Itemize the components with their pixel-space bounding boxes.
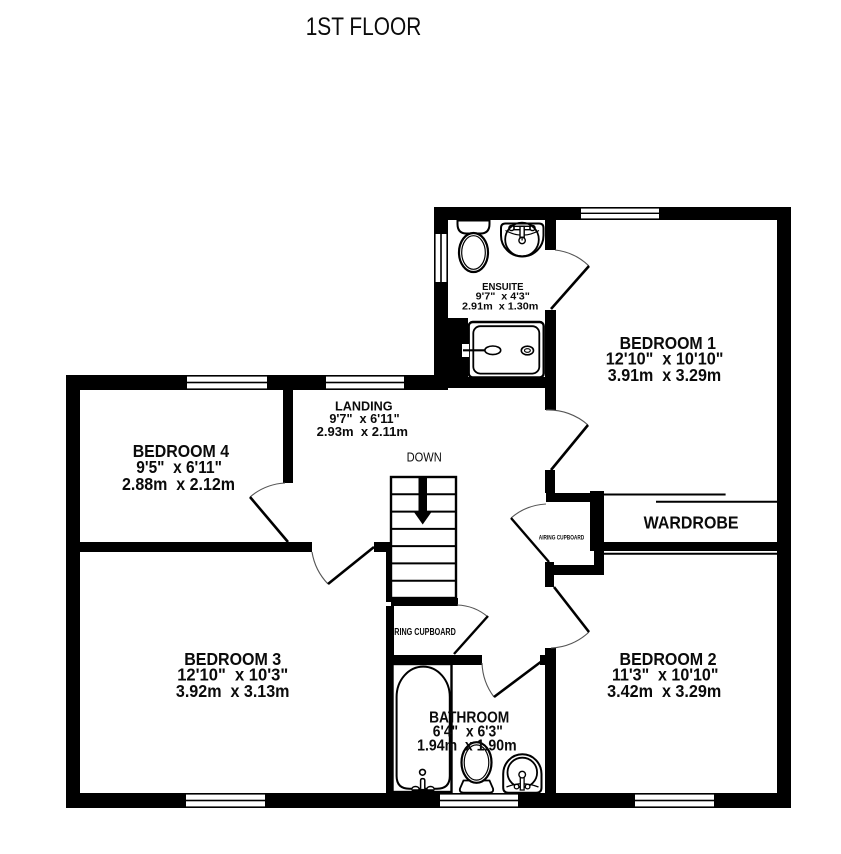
- svg-text:AIRING CUPBOARD: AIRING CUPBOARD: [539, 535, 585, 542]
- svg-text:2.91m x 1.30m: 2.91m x 1.30m: [462, 301, 538, 312]
- svg-text:2.93m x 2.11m: 2.93m x 2.11m: [317, 424, 408, 439]
- svg-text:DOWN: DOWN: [407, 451, 442, 465]
- svg-text:3.42m x 3.29m: 3.42m x 3.29m: [607, 681, 721, 701]
- svg-text:1.94m x 1.90m: 1.94m x 1.90m: [417, 738, 517, 755]
- svg-text:3.91m x 3.29m: 3.91m x 3.29m: [608, 365, 721, 385]
- svg-text:RING CUPBOARD: RING CUPBOARD: [394, 627, 456, 638]
- svg-text:1ST FLOOR: 1ST FLOOR: [306, 13, 422, 41]
- svg-text:2.88m x 2.12m: 2.88m x 2.12m: [122, 474, 235, 494]
- svg-text:3.92m x 3.13m: 3.92m x 3.13m: [176, 681, 290, 701]
- svg-text:WARDROBE: WARDROBE: [644, 513, 739, 533]
